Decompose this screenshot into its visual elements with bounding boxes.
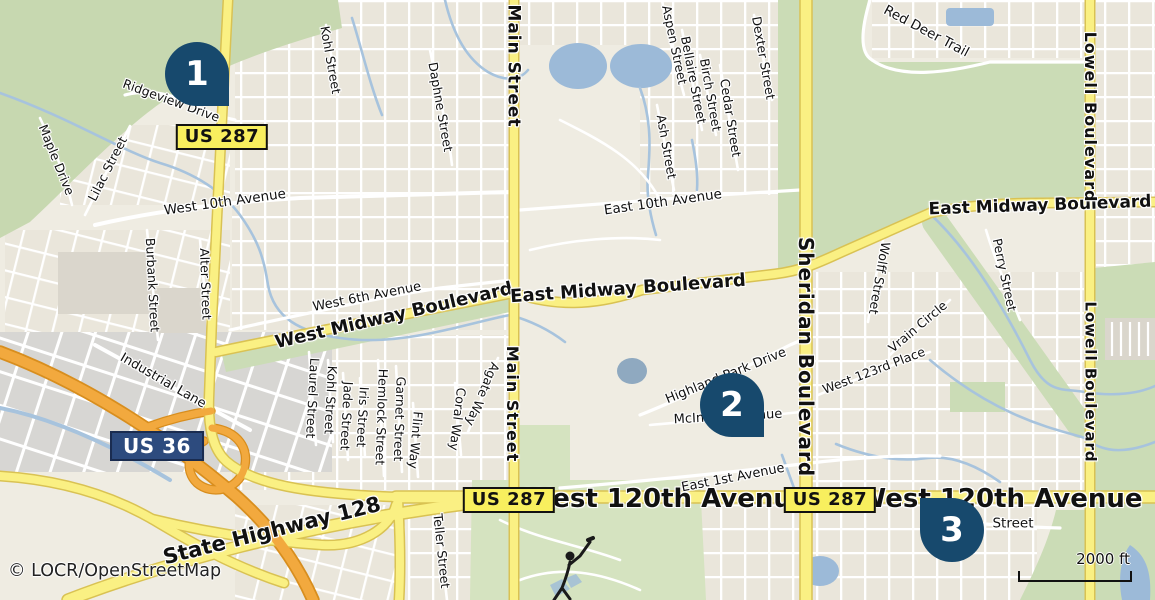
map-marker-3[interactable]: 3 — [920, 498, 984, 562]
marker-number: 2 — [720, 385, 744, 425]
map-attribution: © LOCR/OpenStreetMap — [8, 561, 221, 581]
scale-bar: 2000 ft — [1018, 549, 1132, 582]
marker-number: 3 — [940, 510, 964, 550]
map-marker-1[interactable]: 1 — [165, 42, 229, 106]
scale-line — [1018, 571, 1132, 582]
scale-label: 2000 ft — [1076, 550, 1130, 568]
marker-number: 1 — [185, 54, 209, 94]
map-canvas[interactable]: West 120th AvenueWest 120th AvenueState … — [0, 0, 1155, 600]
map-marker-2[interactable]: 2 — [700, 373, 764, 437]
